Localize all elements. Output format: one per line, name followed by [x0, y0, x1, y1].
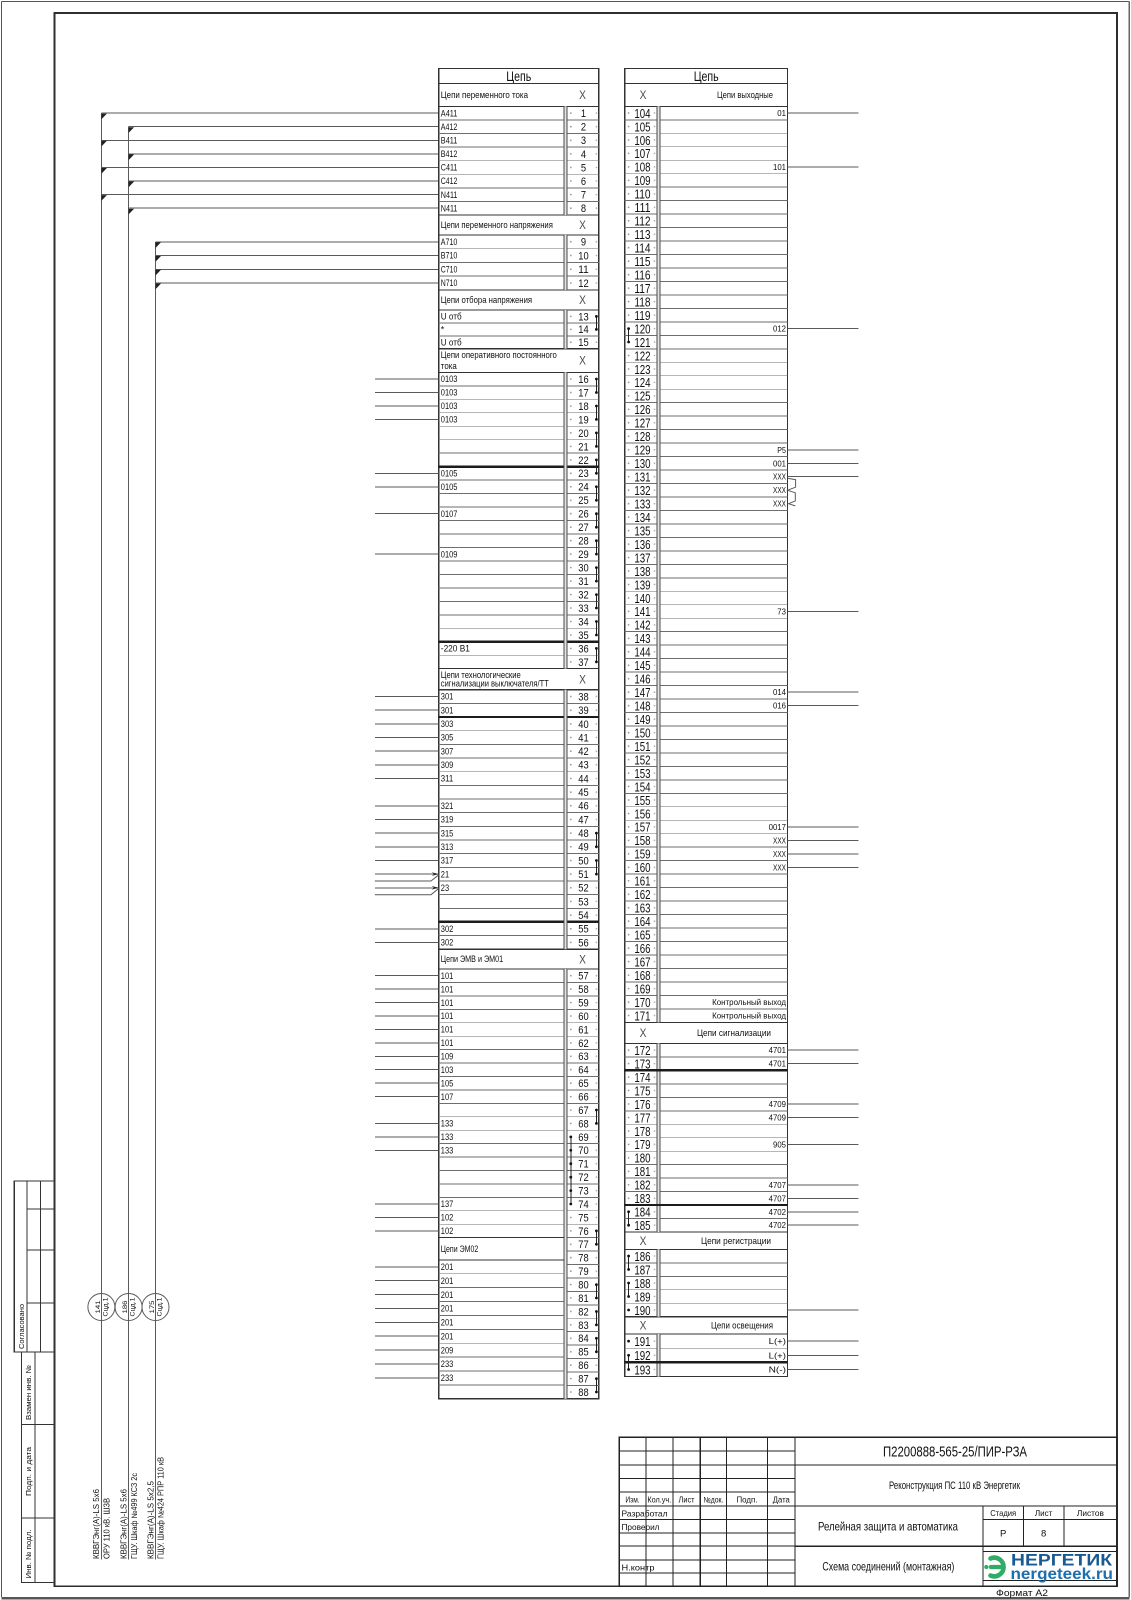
svg-text:Релейная защита и автоматика: Релейная защита и автоматика	[818, 1520, 958, 1534]
svg-text:88: 88	[578, 1387, 588, 1399]
svg-text:305: 305	[441, 733, 454, 743]
svg-text:71: 71	[578, 1159, 588, 1171]
svg-text:41: 41	[578, 732, 588, 744]
svg-text:B412: B412	[441, 149, 458, 159]
svg-text:01: 01	[777, 108, 786, 118]
svg-text:50: 50	[578, 855, 588, 867]
svg-text:31: 31	[578, 576, 588, 588]
svg-text:29: 29	[578, 549, 588, 561]
svg-text:59: 59	[578, 998, 588, 1010]
svg-text:U отб: U отб	[441, 337, 462, 347]
svg-text:Χ: Χ	[579, 674, 586, 686]
svg-text:14: 14	[578, 324, 588, 336]
svg-text:21: 21	[578, 441, 588, 453]
svg-text:73: 73	[578, 1186, 588, 1198]
svg-text:ОРУ 110 кВ. ШЗВ: ОРУ 110 кВ. ШЗВ	[103, 1498, 112, 1559]
svg-text:193: 193	[634, 1362, 650, 1377]
svg-text:Схема соединений (монтажная): Схема соединений (монтажная)	[822, 1559, 954, 1573]
svg-text:77: 77	[578, 1239, 588, 1251]
svg-text:ГЩУ. Шкаф №499 КСЗ 2с: ГЩУ. Шкаф №499 КСЗ 2с	[130, 1473, 139, 1559]
svg-text:Н.контр: Н.контр	[622, 1562, 655, 1572]
svg-text:81: 81	[578, 1293, 588, 1305]
svg-text:P5: P5	[777, 445, 786, 455]
svg-text:Χ: Χ	[579, 90, 586, 102]
svg-text:001: 001	[773, 458, 786, 468]
svg-text:Инв. № подл.: Инв. № подл.	[24, 1530, 33, 1579]
svg-text:Χ: Χ	[640, 90, 647, 102]
svg-text:102: 102	[441, 1213, 454, 1223]
svg-text:55: 55	[578, 924, 588, 936]
svg-text:67: 67	[578, 1105, 588, 1117]
svg-text:32: 32	[578, 590, 588, 602]
svg-text:28: 28	[578, 536, 588, 548]
svg-text:A710: A710	[441, 237, 458, 247]
svg-text:Цепь: Цепь	[506, 69, 531, 84]
svg-text:73: 73	[777, 606, 786, 616]
svg-text:сигнализации выключателя/ТТ: сигнализации выключателя/ТТ	[441, 679, 550, 689]
svg-text:N411: N411	[441, 203, 458, 213]
svg-text:72: 72	[578, 1172, 588, 1184]
svg-text:319: 319	[441, 815, 454, 825]
svg-text:КВВГЭнг(А)-LS 5х2,5: КВВГЭнг(А)-LS 5х2,5	[146, 1480, 155, 1559]
svg-text:*: *	[441, 325, 445, 335]
svg-text:137: 137	[441, 1199, 454, 1209]
svg-text:4709: 4709	[769, 1099, 787, 1109]
svg-text:25: 25	[578, 495, 588, 507]
svg-text:XXX: XXX	[773, 849, 786, 859]
svg-text:КВВГЭнг(А)-LS 5х6: КВВГЭнг(А)-LS 5х6	[119, 1489, 128, 1559]
svg-text:0103: 0103	[441, 415, 458, 425]
svg-text:Контрольный выход: Контрольный выход	[712, 1011, 786, 1021]
svg-text:317: 317	[441, 856, 454, 866]
svg-text:Стадия: Стадия	[990, 1509, 1016, 1518]
svg-text:86: 86	[578, 1360, 588, 1372]
svg-text:0109: 0109	[441, 549, 458, 559]
svg-text:12: 12	[578, 278, 588, 290]
svg-text:107: 107	[441, 1092, 454, 1102]
svg-text:Цепи переменного тока: Цепи переменного тока	[441, 90, 528, 100]
svg-text:48: 48	[578, 828, 588, 840]
svg-text:Цепи переменного напряжения: Цепи переменного напряжения	[441, 220, 553, 230]
svg-text:C710: C710	[441, 265, 458, 275]
svg-text:Сцд.1: Сцд.1	[102, 1297, 109, 1316]
svg-text:XXX: XXX	[773, 499, 786, 509]
svg-text:Лист: Лист	[679, 1495, 695, 1504]
svg-text:23: 23	[578, 468, 588, 480]
svg-text:58: 58	[578, 984, 588, 996]
svg-text:4709: 4709	[769, 1113, 787, 1123]
svg-text:Подп. и дата: Подп. и дата	[24, 1446, 33, 1496]
svg-text:Χ: Χ	[640, 1028, 647, 1040]
svg-text:Сцд.1: Сцд.1	[130, 1297, 137, 1316]
svg-text:101: 101	[441, 998, 454, 1008]
svg-text:33: 33	[578, 603, 588, 615]
svg-text:Цепи выходные: Цепи выходные	[717, 90, 773, 101]
svg-text:Согласовано: Согласовано	[17, 1304, 26, 1349]
svg-text:307: 307	[441, 746, 454, 756]
svg-text:Цепи оперативного постоянного: Цепи оперативного постоянного	[441, 350, 557, 360]
svg-text:76: 76	[578, 1226, 588, 1238]
svg-text:8: 8	[581, 203, 586, 215]
svg-text:68: 68	[578, 1118, 588, 1130]
svg-text:46: 46	[578, 801, 588, 813]
svg-text:103: 103	[441, 1065, 454, 1075]
svg-text:Χ: Χ	[579, 356, 586, 368]
svg-text:133: 133	[441, 1146, 454, 1156]
svg-text:Листов: Листов	[1077, 1509, 1104, 1518]
svg-text:185: 185	[634, 1218, 650, 1233]
svg-text:65: 65	[578, 1078, 588, 1090]
svg-text:4707: 4707	[769, 1180, 787, 1190]
svg-text:78: 78	[578, 1253, 588, 1265]
svg-text:49: 49	[578, 842, 588, 854]
svg-text:74: 74	[578, 1199, 588, 1211]
svg-text:209: 209	[441, 1345, 454, 1355]
svg-text:U отб: U отб	[441, 312, 462, 322]
svg-text:38: 38	[578, 691, 588, 703]
svg-text:XXX: XXX	[773, 472, 786, 482]
svg-text:N(-): N(-)	[769, 1365, 787, 1375]
svg-text:Сцд.1: Сцд.1	[157, 1297, 164, 1316]
svg-text:0103: 0103	[441, 401, 458, 411]
svg-text:22: 22	[578, 455, 588, 467]
svg-text:24: 24	[578, 482, 588, 494]
svg-text:44: 44	[578, 773, 588, 785]
svg-text:70: 70	[578, 1145, 588, 1157]
svg-text:N411: N411	[441, 190, 458, 200]
svg-text:84: 84	[578, 1333, 588, 1345]
svg-text:3: 3	[581, 135, 586, 147]
svg-text:201: 201	[441, 1304, 454, 1314]
svg-text:26: 26	[578, 509, 588, 521]
svg-text:190: 190	[634, 1303, 650, 1318]
svg-text:301: 301	[441, 692, 454, 702]
svg-text:15: 15	[578, 337, 588, 349]
svg-text:53: 53	[578, 896, 588, 908]
svg-text:201: 201	[441, 1290, 454, 1300]
svg-text:101: 101	[441, 1038, 454, 1048]
svg-text:52: 52	[578, 883, 588, 895]
svg-text:80: 80	[578, 1280, 588, 1292]
svg-text:133: 133	[441, 1119, 454, 1129]
svg-text:1: 1	[581, 108, 586, 120]
svg-text:4702: 4702	[769, 1207, 787, 1217]
svg-text:171: 171	[634, 1008, 650, 1023]
svg-text:016: 016	[773, 701, 786, 711]
svg-text:0105: 0105	[441, 482, 458, 492]
svg-text:20: 20	[578, 428, 588, 440]
svg-text:Цепи отбора напряжения: Цепи отбора напряжения	[441, 295, 533, 305]
svg-text:35: 35	[578, 630, 588, 642]
svg-text:2: 2	[581, 122, 586, 134]
svg-text:Χ: Χ	[579, 295, 586, 307]
svg-text:-220 В1: -220 В1	[441, 644, 470, 654]
svg-text:B710: B710	[441, 251, 458, 261]
svg-text:4702: 4702	[769, 1220, 787, 1230]
svg-text:N710: N710	[441, 278, 458, 288]
svg-text:L(+): L(+)	[769, 1336, 787, 1346]
svg-text:79: 79	[578, 1266, 588, 1278]
svg-text:Формат А2: Формат А2	[996, 1588, 1048, 1598]
svg-text:45: 45	[578, 787, 588, 799]
svg-text:B411: B411	[441, 136, 458, 146]
svg-text:014: 014	[773, 687, 786, 697]
svg-text:101: 101	[441, 1011, 454, 1021]
svg-text:101: 101	[773, 162, 786, 172]
svg-text:C412: C412	[441, 176, 458, 186]
svg-text:51: 51	[578, 869, 588, 881]
svg-text:5: 5	[581, 162, 586, 174]
svg-text:0103: 0103	[441, 388, 458, 398]
svg-text:201: 201	[441, 1318, 454, 1328]
svg-text:4707: 4707	[769, 1193, 787, 1203]
svg-text:Цепь: Цепь	[694, 69, 719, 84]
svg-text:233: 233	[441, 1359, 454, 1369]
svg-text:42: 42	[578, 746, 588, 758]
svg-text:Изм.: Изм.	[625, 1495, 639, 1504]
svg-text:012: 012	[773, 324, 786, 334]
svg-text:тока: тока	[441, 361, 457, 371]
svg-text:69: 69	[578, 1132, 588, 1144]
svg-text:Контрольный выход: Контрольный выход	[712, 997, 786, 1007]
svg-text:40: 40	[578, 719, 588, 731]
svg-text:141: 141	[95, 1300, 102, 1313]
svg-text:Цепи сигнализации: Цепи сигнализации	[697, 1028, 771, 1039]
svg-text:Χ: Χ	[640, 1321, 647, 1333]
svg-text:34: 34	[578, 616, 588, 628]
svg-text:Цепи ЭМ02: Цепи ЭМ02	[441, 1244, 479, 1254]
svg-text:36: 36	[578, 643, 588, 655]
svg-text:192: 192	[634, 1348, 650, 1363]
svg-text:C411: C411	[441, 163, 458, 173]
svg-text:Взамен инв. №: Взамен инв. №	[24, 1365, 33, 1420]
svg-text:Проверил: Проверил	[622, 1522, 660, 1532]
svg-text:13: 13	[578, 311, 588, 323]
svg-text:0107: 0107	[441, 509, 458, 519]
svg-text:4701: 4701	[769, 1059, 787, 1069]
svg-text:82: 82	[578, 1306, 588, 1318]
svg-text:62: 62	[578, 1038, 588, 1050]
svg-text:321: 321	[441, 801, 454, 811]
svg-text:57: 57	[578, 971, 588, 983]
svg-text:A411: A411	[441, 108, 458, 118]
svg-text:64: 64	[578, 1065, 588, 1077]
svg-text:П2200888-565-25/ПИР-РЗА: П2200888-565-25/ПИР-РЗА	[883, 1445, 1027, 1461]
svg-text:Подп.: Подп.	[737, 1495, 758, 1504]
svg-text:0103: 0103	[441, 374, 458, 384]
svg-text:Χ: Χ	[579, 220, 586, 232]
svg-text:102: 102	[441, 1226, 454, 1236]
svg-text:Дата: Дата	[773, 1495, 791, 1504]
svg-text:21: 21	[441, 869, 449, 879]
svg-text:105: 105	[441, 1078, 454, 1088]
svg-text:9: 9	[581, 237, 586, 249]
svg-text:4: 4	[581, 149, 586, 161]
svg-text:37: 37	[578, 657, 588, 669]
svg-text:0017: 0017	[769, 822, 787, 832]
svg-text:Реконструкция ПС 110 кВ Энерге: Реконструкция ПС 110 кВ Энергетик	[889, 1480, 1020, 1492]
svg-text:39: 39	[578, 705, 588, 717]
svg-text:302: 302	[441, 938, 454, 948]
svg-text:4701: 4701	[769, 1045, 787, 1055]
svg-text:Цепи ЭМВ и ЭМ01: Цепи ЭМВ и ЭМ01	[441, 954, 503, 964]
svg-text:30: 30	[578, 563, 588, 575]
svg-text:101: 101	[441, 1025, 454, 1035]
svg-text:66: 66	[578, 1092, 588, 1104]
svg-text:Цепи освещения: Цепи освещения	[711, 1321, 773, 1332]
svg-text:315: 315	[441, 828, 454, 838]
svg-text:Χ: Χ	[640, 1236, 647, 1248]
svg-text:201: 201	[441, 1276, 454, 1286]
svg-text:Кол.уч.: Кол.уч.	[647, 1495, 671, 1504]
svg-text:18: 18	[578, 401, 588, 413]
svg-text:ГЩУ. Шкаф №424 РПР 110 кВ: ГЩУ. Шкаф №424 РПР 110 кВ	[157, 1457, 166, 1559]
svg-text:87: 87	[578, 1374, 588, 1386]
svg-text:60: 60	[578, 1011, 588, 1023]
svg-text:54: 54	[578, 910, 588, 922]
svg-text:Цепи регистрации: Цепи регистрации	[701, 1236, 771, 1247]
svg-text:61: 61	[578, 1024, 588, 1036]
svg-text:301: 301	[441, 705, 454, 715]
svg-text:63: 63	[578, 1051, 588, 1063]
svg-text:905: 905	[773, 1139, 786, 1149]
svg-text:85: 85	[578, 1347, 588, 1359]
svg-text:Разработал: Разработал	[622, 1509, 668, 1519]
svg-text:0105: 0105	[441, 469, 458, 479]
svg-text:191: 191	[634, 1334, 650, 1349]
svg-text:23: 23	[441, 883, 449, 893]
svg-text:27: 27	[578, 522, 588, 534]
svg-text:313: 313	[441, 842, 454, 852]
svg-text:XXX: XXX	[773, 485, 786, 495]
svg-text:XXX: XXX	[773, 835, 786, 845]
svg-text:311: 311	[441, 774, 454, 784]
svg-text:10: 10	[578, 250, 588, 262]
svg-text:11: 11	[578, 264, 588, 276]
svg-text:A412: A412	[441, 122, 458, 132]
svg-text:Χ: Χ	[579, 954, 586, 966]
svg-text:8: 8	[1041, 1529, 1046, 1540]
svg-text:16: 16	[578, 374, 588, 386]
svg-text:6: 6	[581, 176, 586, 188]
svg-text:№док.: №док.	[703, 1495, 723, 1504]
svg-text:233: 233	[441, 1373, 454, 1383]
svg-text:303: 303	[441, 719, 454, 729]
svg-text:47: 47	[578, 814, 588, 826]
svg-text:Лист: Лист	[1035, 1509, 1053, 1518]
svg-text:L(+): L(+)	[769, 1350, 787, 1360]
svg-text:186: 186	[122, 1300, 129, 1313]
svg-text:43: 43	[578, 760, 588, 772]
svg-text:17: 17	[578, 387, 588, 399]
svg-text:КВВГЭнг(А)-LS 5х6: КВВГЭнг(А)-LS 5х6	[92, 1489, 101, 1559]
svg-text:309: 309	[441, 760, 454, 770]
svg-text:nergeteek.ru: nergeteek.ru	[1011, 1566, 1114, 1583]
svg-text:101: 101	[441, 984, 454, 994]
svg-text:302: 302	[441, 924, 454, 934]
svg-text:201: 201	[441, 1262, 454, 1272]
svg-text:101: 101	[441, 971, 454, 981]
svg-text:Р: Р	[1000, 1529, 1006, 1540]
svg-text:75: 75	[578, 1212, 588, 1224]
svg-text:175: 175	[149, 1300, 156, 1313]
svg-text:201: 201	[441, 1332, 454, 1342]
svg-text:XXX: XXX	[773, 862, 786, 872]
svg-text:56: 56	[578, 937, 588, 949]
svg-text:133: 133	[441, 1132, 454, 1142]
svg-text:83: 83	[578, 1320, 588, 1332]
svg-text:19: 19	[578, 414, 588, 426]
svg-text:7: 7	[581, 190, 586, 202]
svg-text:109: 109	[441, 1052, 454, 1062]
